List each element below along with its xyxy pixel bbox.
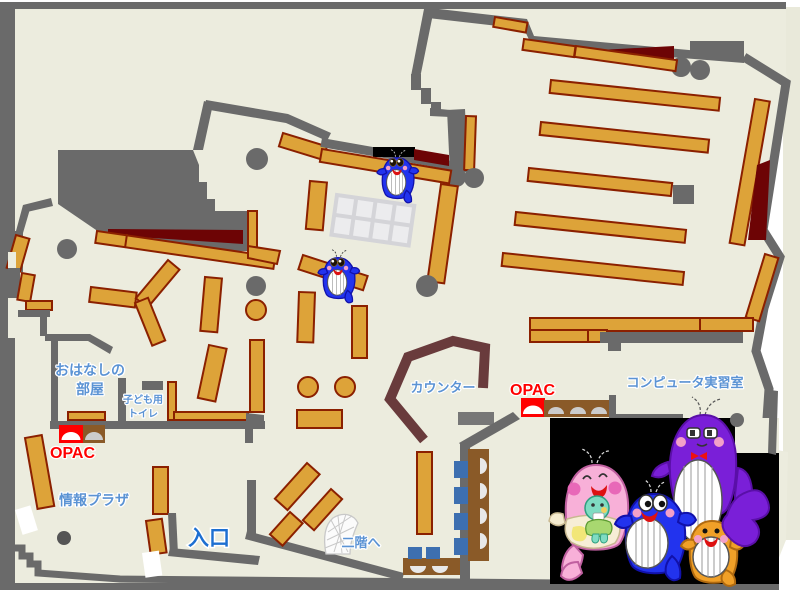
svg-text:おはなしの: おはなしの — [55, 362, 125, 378]
svg-text:部屋: 部屋 — [76, 381, 104, 397]
svg-text:子ども用: 子ども用 — [123, 393, 163, 406]
svg-text:情報プラザ: 情報プラザ — [59, 492, 129, 508]
svg-text:トイレ: トイレ — [128, 408, 158, 420]
svg-text:カウンター: カウンター — [410, 380, 475, 395]
svg-text:コンピュータ実習室: コンピュータ実習室 — [626, 375, 743, 390]
svg-text:二階へ: 二階へ — [341, 535, 380, 550]
svg-text:OPAC: OPAC — [50, 445, 95, 462]
svg-text:OPAC: OPAC — [510, 382, 555, 399]
svg-text:入口: 入口 — [188, 527, 230, 550]
